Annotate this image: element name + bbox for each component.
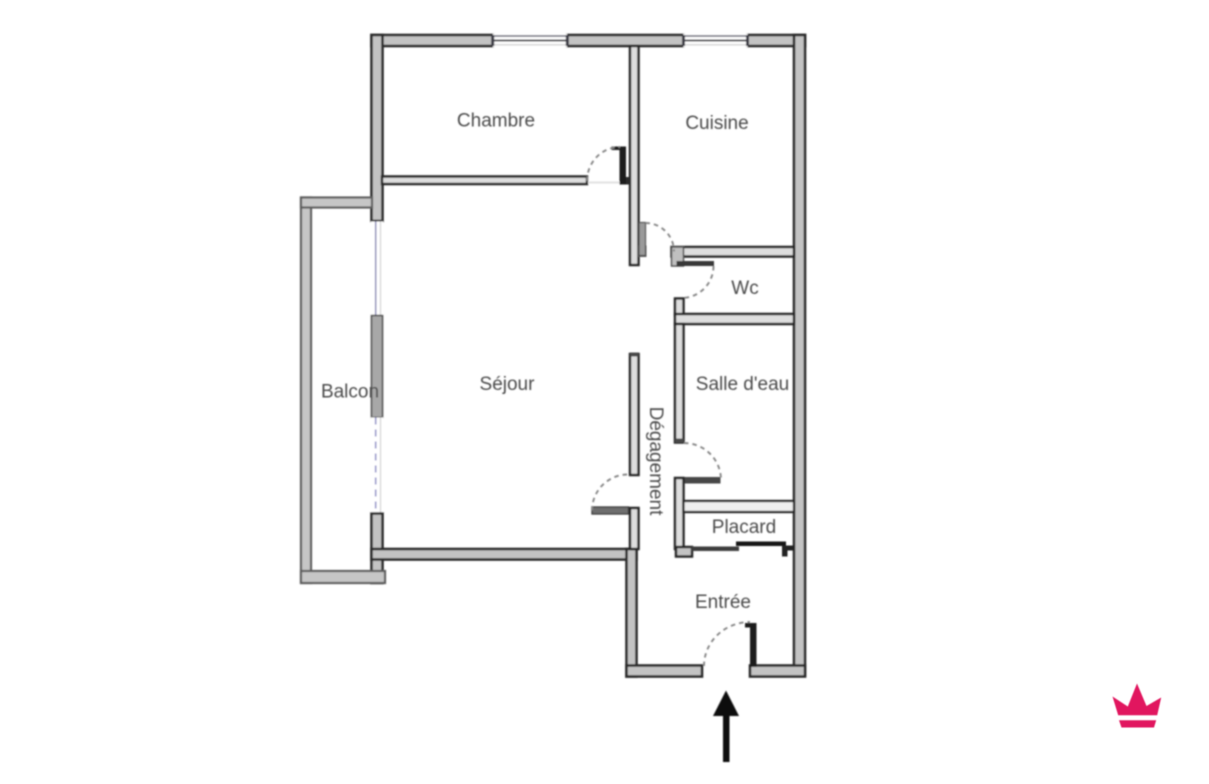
svg-text:Salle d'eau: Salle d'eau: [696, 374, 789, 395]
svg-text:Wc: Wc: [731, 278, 758, 299]
svg-text:Dégagement: Dégagement: [645, 407, 666, 517]
svg-text:Balcon: Balcon: [321, 382, 379, 403]
svg-text:Cuisine: Cuisine: [685, 113, 748, 134]
svg-text:Placard: Placard: [712, 517, 776, 538]
svg-text:Séjour: Séjour: [480, 374, 536, 395]
svg-text:Chambre: Chambre: [457, 111, 535, 132]
svg-text:Entrée: Entrée: [695, 592, 751, 613]
